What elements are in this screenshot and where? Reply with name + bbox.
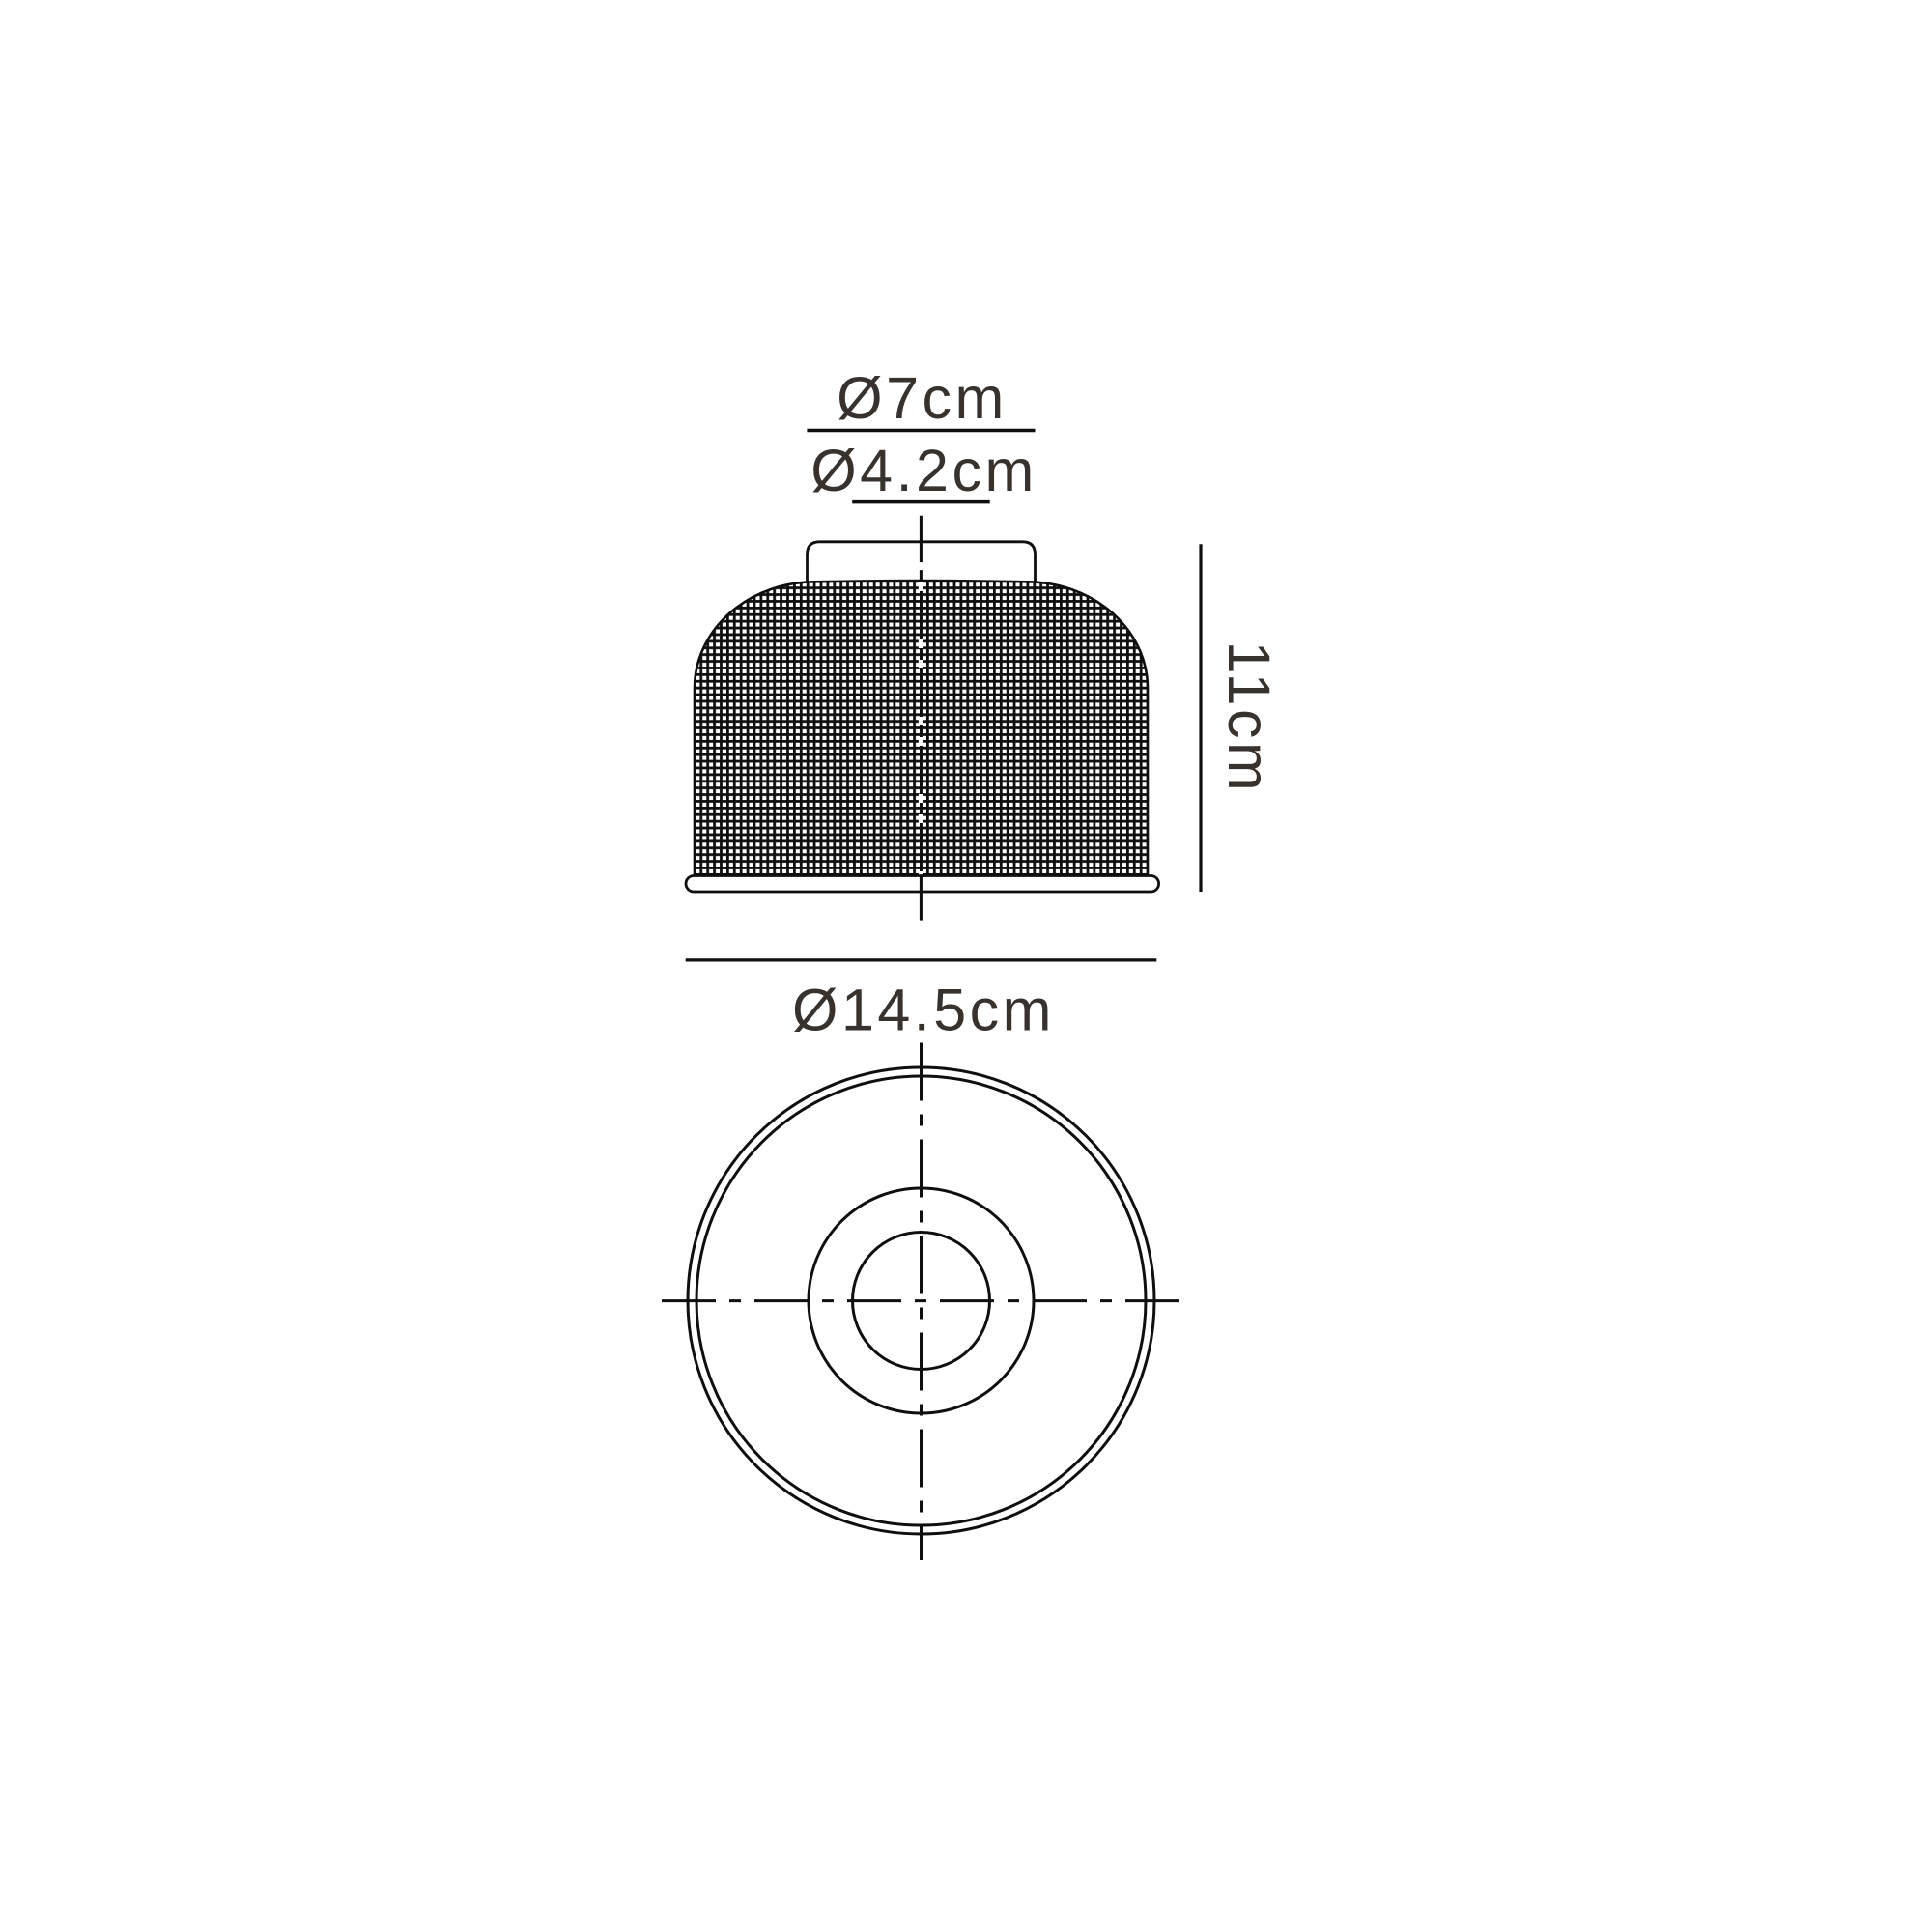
svg-text:Ø4.2cm: Ø4.2cm [810, 438, 1037, 503]
svg-text:Ø7cm: Ø7cm [837, 365, 1008, 431]
svg-text:Ø14.5cm: Ø14.5cm [792, 978, 1055, 1043]
svg-text:11cm: 11cm [1216, 641, 1282, 795]
